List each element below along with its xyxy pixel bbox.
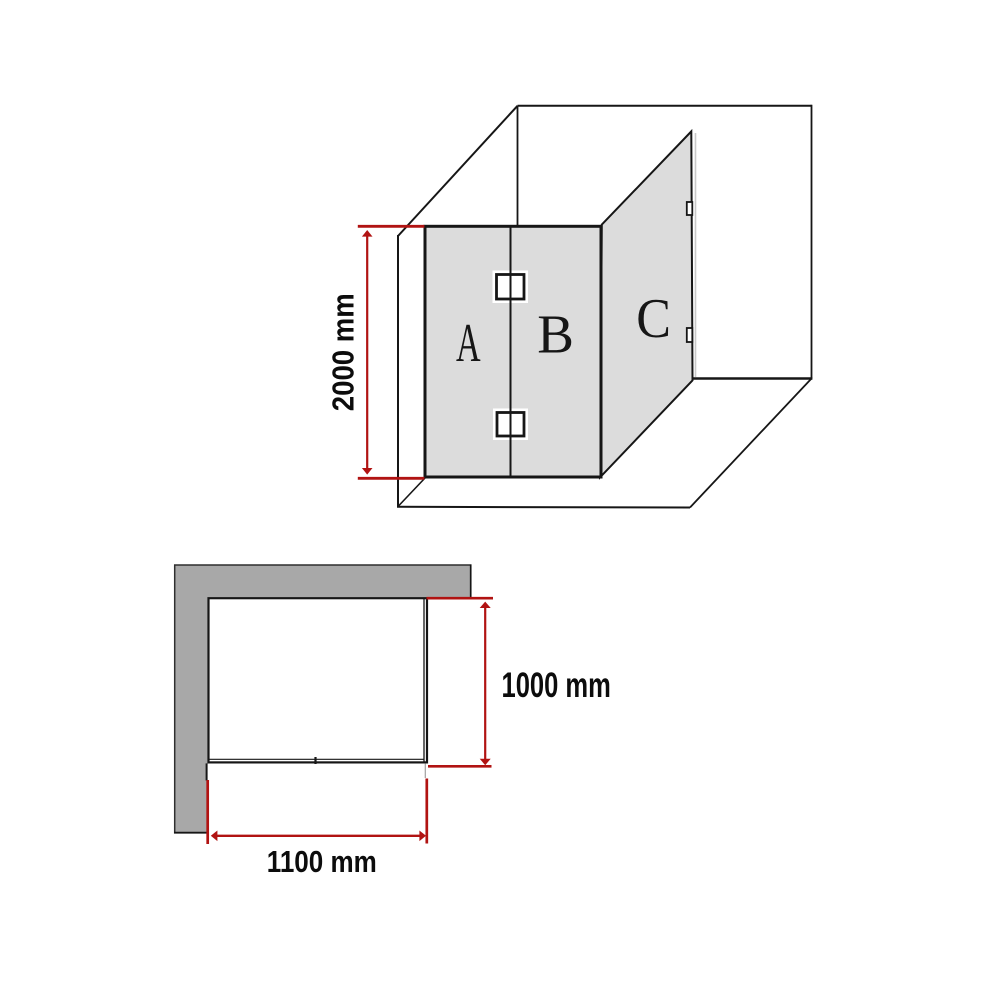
svg-text:1000 mm: 1000 mm bbox=[502, 666, 611, 705]
svg-text:A: A bbox=[456, 312, 481, 373]
svg-text:C: C bbox=[636, 287, 671, 349]
svg-text:B: B bbox=[537, 303, 574, 364]
svg-text:1100 mm: 1100 mm bbox=[267, 845, 377, 880]
svg-text:2000 mm: 2000 mm bbox=[327, 293, 361, 411]
